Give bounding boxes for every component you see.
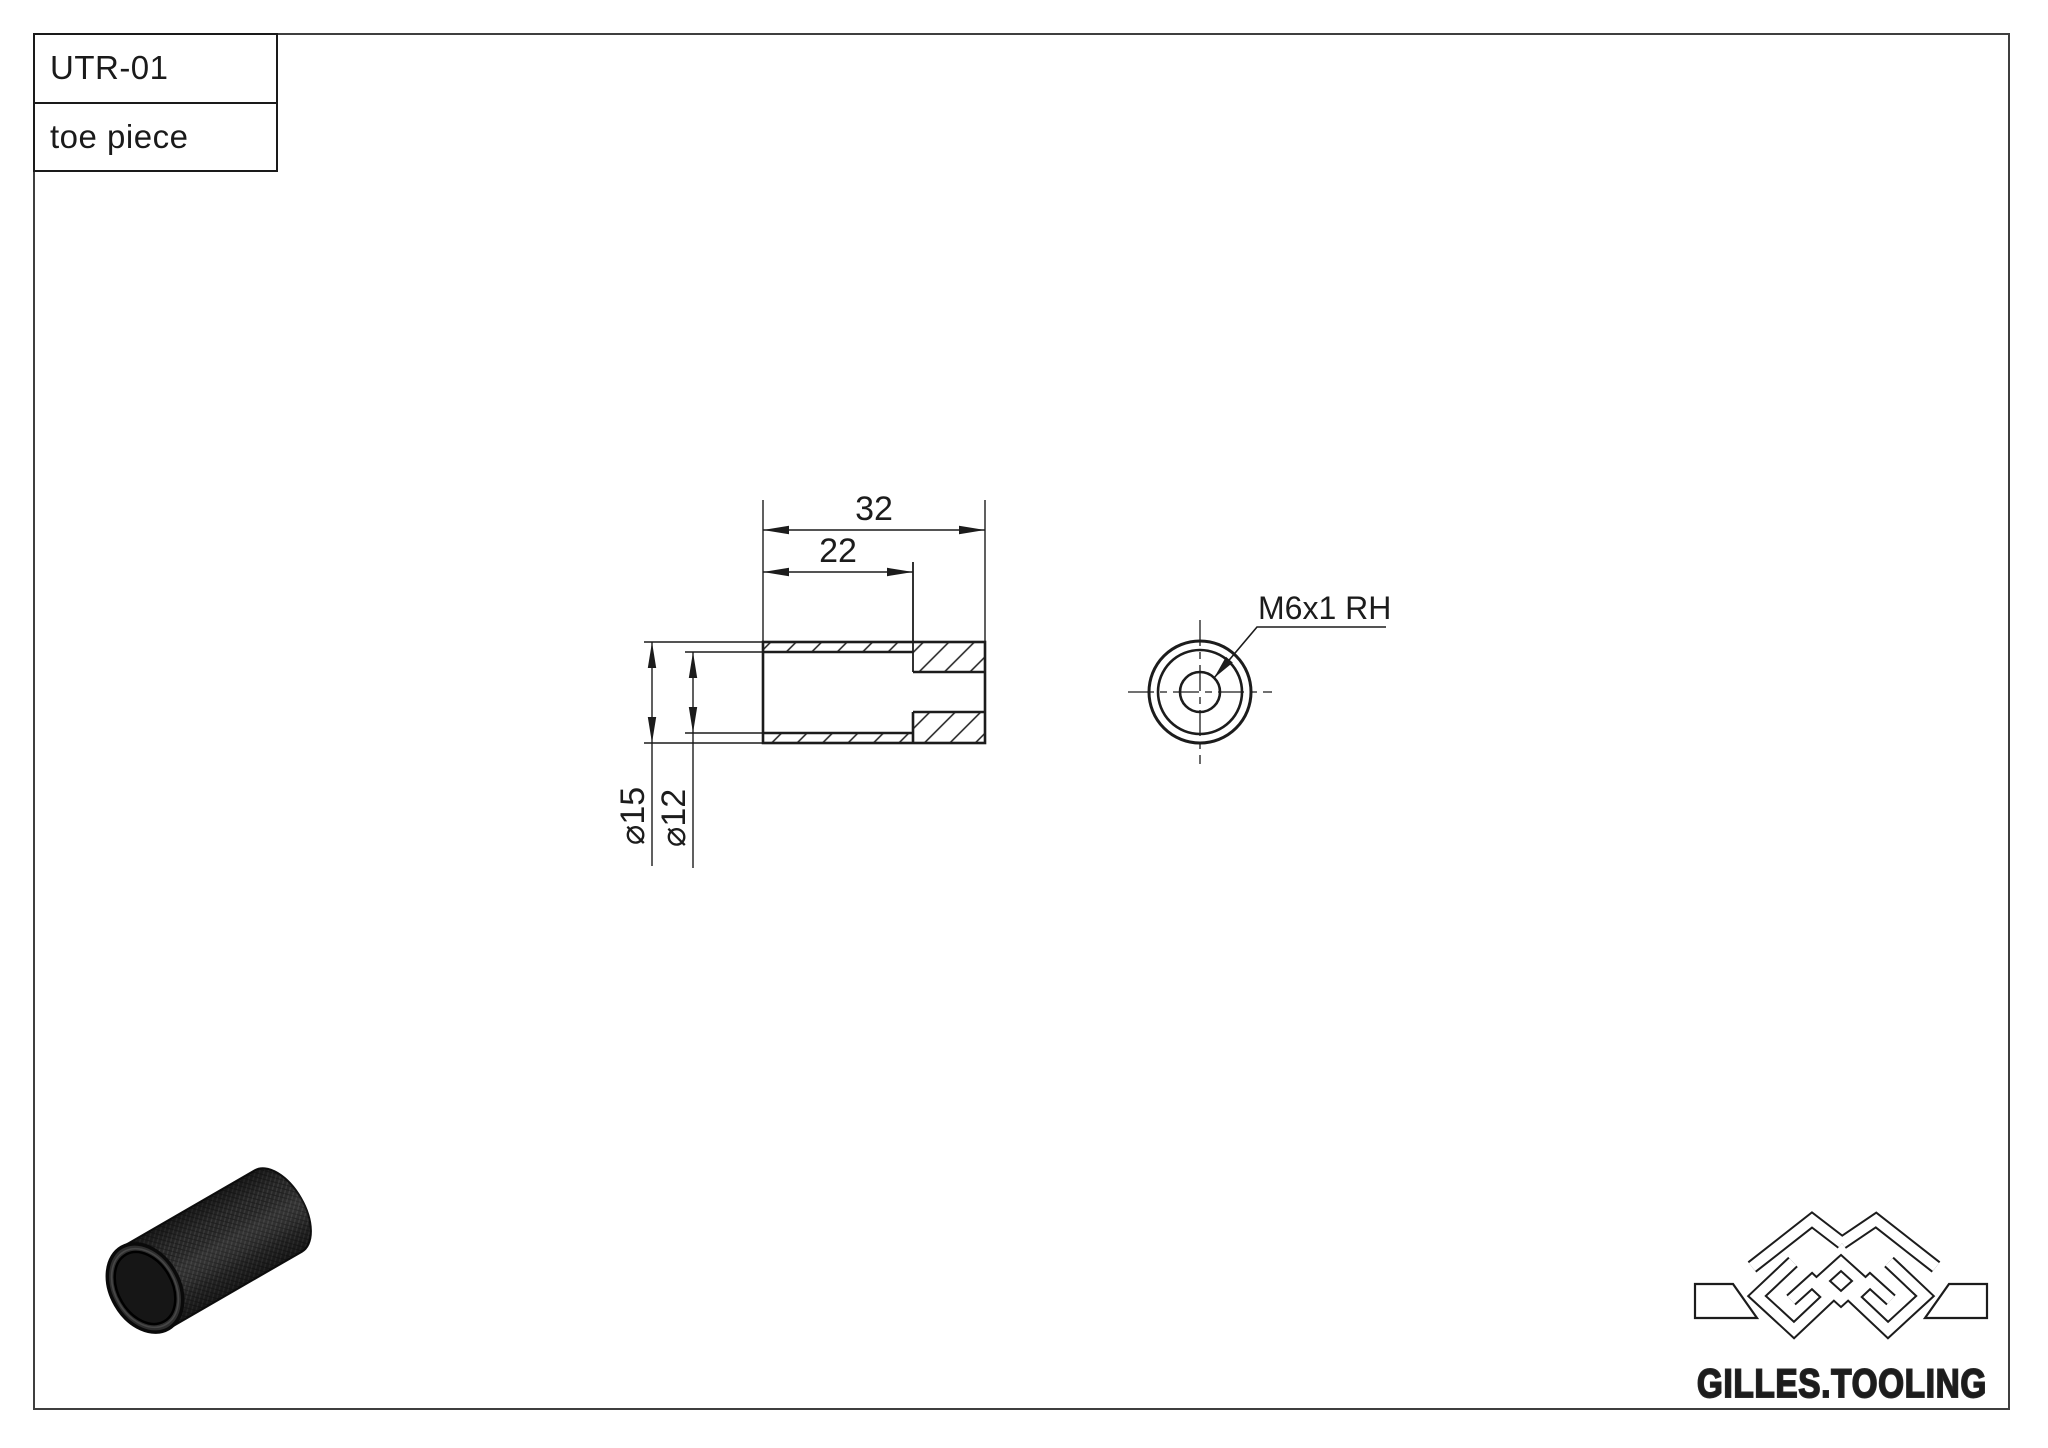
dim-outer-diameter-text: ⌀15 — [614, 787, 652, 845]
dim-counterbore-diameter-text: ⌀12 — [655, 789, 693, 847]
drawing-sheet: UTR-01 toe piece — [0, 0, 2048, 1448]
drawing-canvas: 32 22 ⌀15 — [0, 0, 2048, 1448]
logo-left-wing — [1695, 1284, 1757, 1318]
logo-right-wing — [1925, 1284, 1987, 1318]
thread-callout-text: M6x1 RH — [1258, 590, 1391, 626]
end-view: M6x1 RH — [1128, 590, 1391, 764]
logo-wordmark: GILLES.TOOLING — [1697, 1362, 1987, 1406]
section-hatching — [763, 642, 985, 743]
section-view: 32 22 ⌀15 — [614, 490, 985, 868]
dim-total-length: 32 — [763, 490, 985, 642]
logo: GILLES.TOOLING — [1695, 1220, 1987, 1406]
dim-counterbore-depth-text: 22 — [819, 532, 857, 570]
logo-emblem — [1695, 1220, 1987, 1330]
dim-counterbore-diameter: ⌀12 — [655, 652, 763, 868]
dim-counterbore-depth: 22 — [763, 532, 913, 576]
dim-total-length-text: 32 — [855, 490, 893, 528]
thread-callout-leader: M6x1 RH — [1214, 590, 1391, 678]
part-3d-render — [92, 1157, 324, 1345]
